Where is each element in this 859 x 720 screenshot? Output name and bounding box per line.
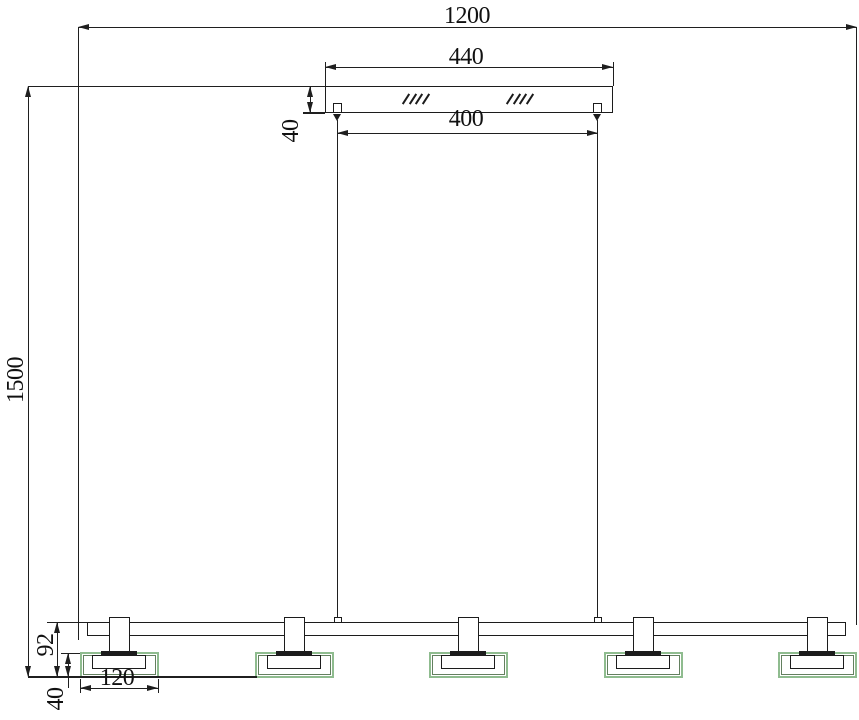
dim-shade-width-arrow-right [147, 685, 158, 691]
dim-overall-width-ext-right [856, 27, 857, 625]
lamp-head-3 [429, 617, 508, 679]
lamp-stem [633, 617, 654, 652]
dim-canopy-width-arrow-left [325, 64, 336, 70]
lamp-stem [807, 617, 828, 652]
dim-overall-height-ext-top [28, 86, 325, 87]
dim-canopy-height-arrow-down [307, 102, 313, 113]
dim-overall-width-arrow-left [78, 24, 89, 30]
dim-overall-width-label: 1200 [444, 4, 490, 28]
dim-head-height-arrow-up [54, 622, 60, 633]
dim-shade-width-ext-right [158, 679, 159, 693]
dim-shade-height-arrow-down [65, 666, 71, 677]
dim-overall-height-ext-bottom [28, 676, 257, 677]
dim-wire-spacing-label: 400 [449, 107, 484, 131]
dim-shade-width-label: 120 [100, 666, 135, 690]
dim-overall-height-arrow-up [25, 86, 31, 97]
dim-wire-spacing-arrow-left [337, 130, 348, 136]
dim-shade-height-ext [61, 653, 80, 654]
lamp-body [441, 655, 495, 669]
dim-canopy-height-ext [303, 112, 325, 113]
lamp-stem [284, 617, 305, 652]
lamp-head-5 [778, 617, 857, 679]
lamp-plate [625, 651, 661, 656]
dim-overall-width-ext-left [78, 27, 79, 640]
dim-canopy-height-arrow-up [307, 86, 313, 97]
dim-canopy-width-ext-left [325, 62, 326, 86]
dim-shade-width-arrow-left [80, 685, 91, 691]
lamp-plate [450, 651, 486, 656]
dim-head-height-ext [47, 622, 88, 623]
dim-head-height-arrow-down [54, 666, 60, 677]
dim-shade-height-label: 40 [44, 688, 68, 711]
dim-head-height-label: 92 [34, 634, 58, 657]
suspension-wire-left [337, 120, 338, 617]
lamp-head-4 [604, 617, 683, 679]
dim-canopy-width-arrow-right [602, 64, 613, 70]
lamp-stem [109, 617, 130, 652]
lamp-body [267, 655, 321, 669]
dim-canopy-height-label: 40 [279, 120, 303, 143]
lamp-body [790, 655, 844, 669]
dim-shade-width-ext-left [80, 679, 81, 693]
dim-canopy-width-label: 440 [449, 45, 484, 69]
lamp-plate [101, 651, 137, 656]
dim-shade-height-arrow-up [65, 653, 71, 664]
suspension-wire-right [597, 120, 598, 617]
canopy-wire-connector-left [333, 103, 342, 113]
dim-wire-spacing-line [337, 133, 598, 134]
lamp-body [616, 655, 670, 669]
dim-canopy-width-ext-right [613, 62, 614, 86]
dim-overall-height-arrow-down [25, 666, 31, 677]
bar-wire-connector-right [594, 617, 603, 624]
lamp-stem [458, 617, 479, 652]
lamp-plate [799, 651, 835, 656]
lamp-plate [276, 651, 312, 656]
bar-wire-connector-left [334, 617, 343, 624]
lamp-head-2 [255, 617, 334, 679]
canopy-wire-connector-right [593, 103, 602, 113]
dim-overall-height-label: 1500 [4, 357, 28, 403]
drawing-canvas: 1200 440 400 40 1500 [0, 0, 859, 720]
